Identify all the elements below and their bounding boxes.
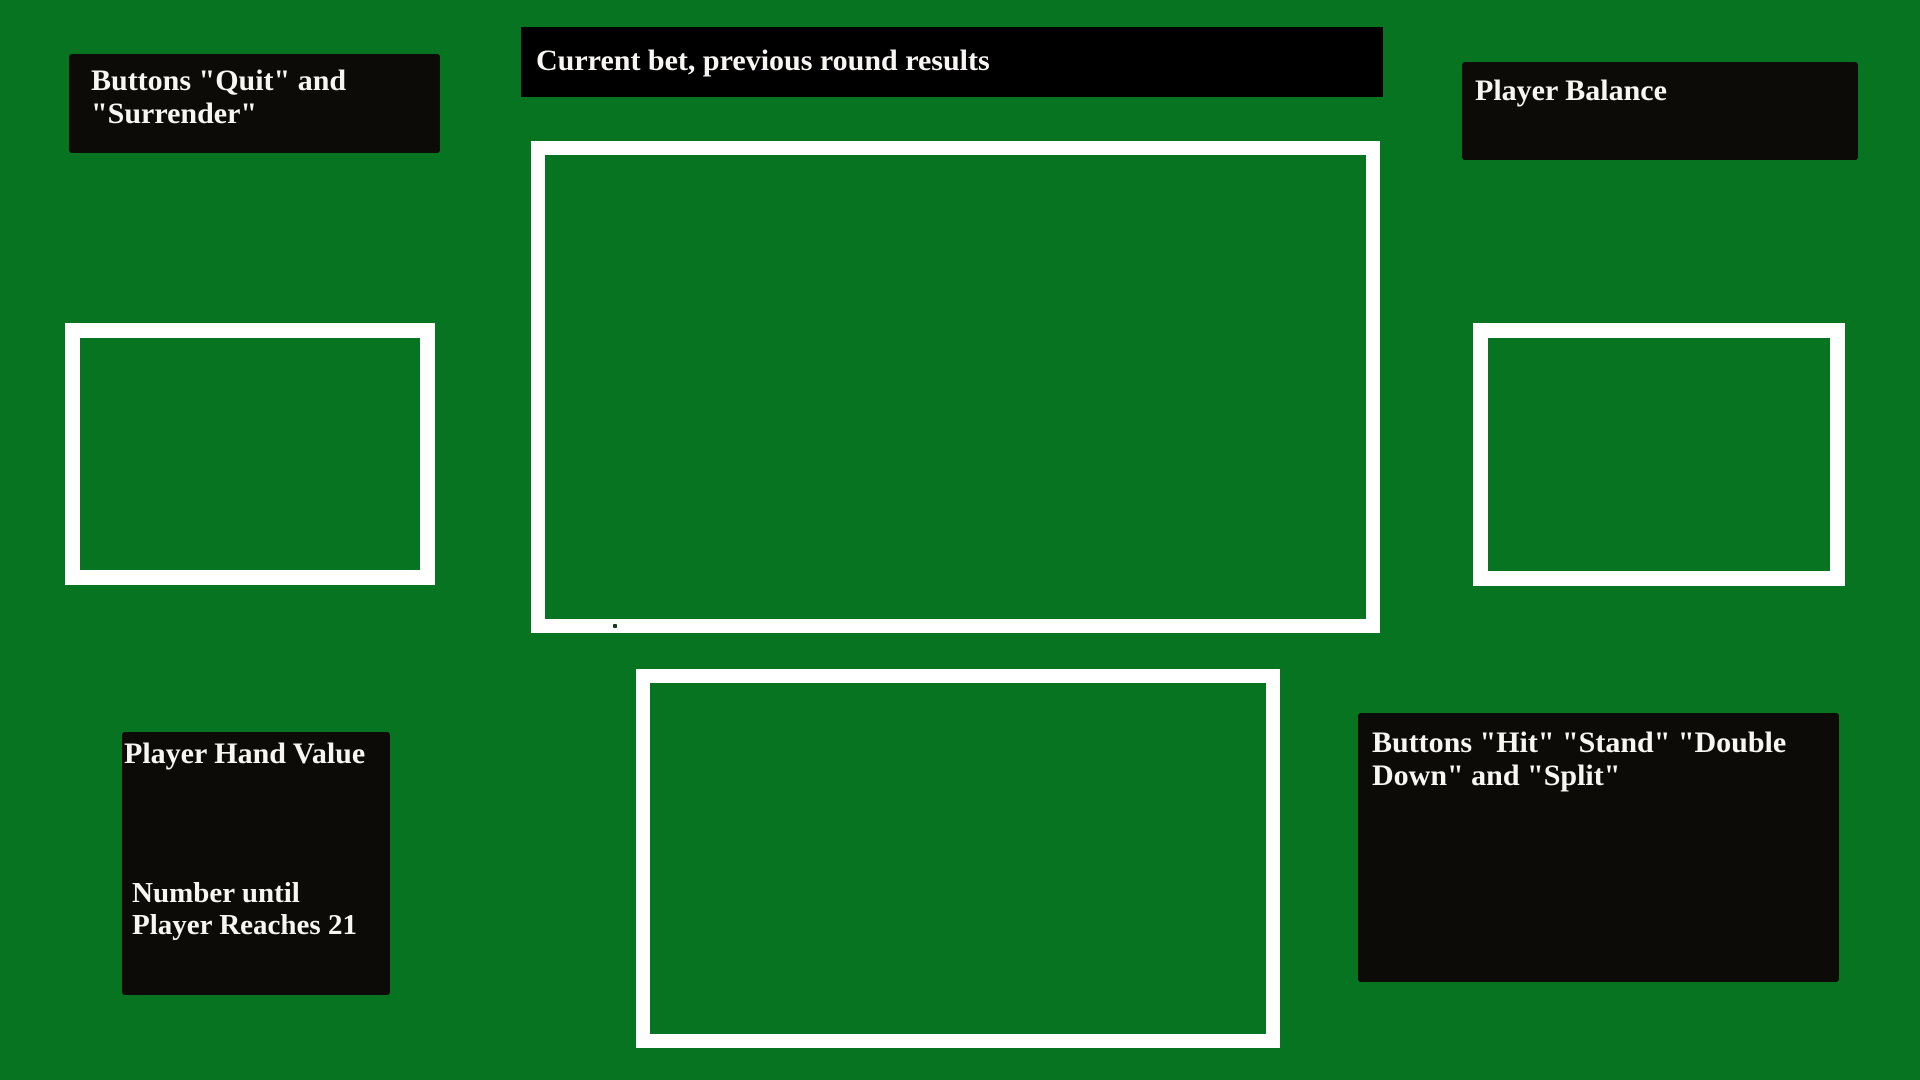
quit-surrender-annotation-box: Buttons "Quit" and "Surrender" <box>69 54 440 153</box>
player-balance-annotation-box: Player Balance <box>1462 62 1858 160</box>
placeholder-frame-left <box>65 323 435 585</box>
quit-surrender-annotation-label: Buttons "Quit" and "Surrender" <box>91 64 346 130</box>
current-bet-banner-label: Current bet, previous round results <box>536 44 990 77</box>
action-buttons-annotation-box: Buttons "Hit" "Stand" "Double Down" and … <box>1358 713 1839 982</box>
number-until-21-annotation-label: Number until Player Reaches 21 <box>132 878 357 942</box>
action-buttons-annotation-label: Buttons "Hit" "Stand" "Double Down" and … <box>1372 726 1786 792</box>
player-hand-value-annotation-box: Player Hand Value Number until Player Re… <box>122 732 390 995</box>
current-bet-banner: Current bet, previous round results <box>521 27 1383 97</box>
blackjack-ui-wireframe: Current bet, previous round results Butt… <box>0 0 1920 1080</box>
placeholder-frame-bottom-player-area <box>636 669 1280 1048</box>
stray-dot-mark <box>613 624 617 628</box>
placeholder-frame-center-dealer-area <box>531 141 1380 633</box>
placeholder-frame-right <box>1473 323 1845 586</box>
player-balance-annotation-label: Player Balance <box>1475 74 1667 107</box>
player-hand-value-annotation-label: Player Hand Value <box>124 737 365 770</box>
